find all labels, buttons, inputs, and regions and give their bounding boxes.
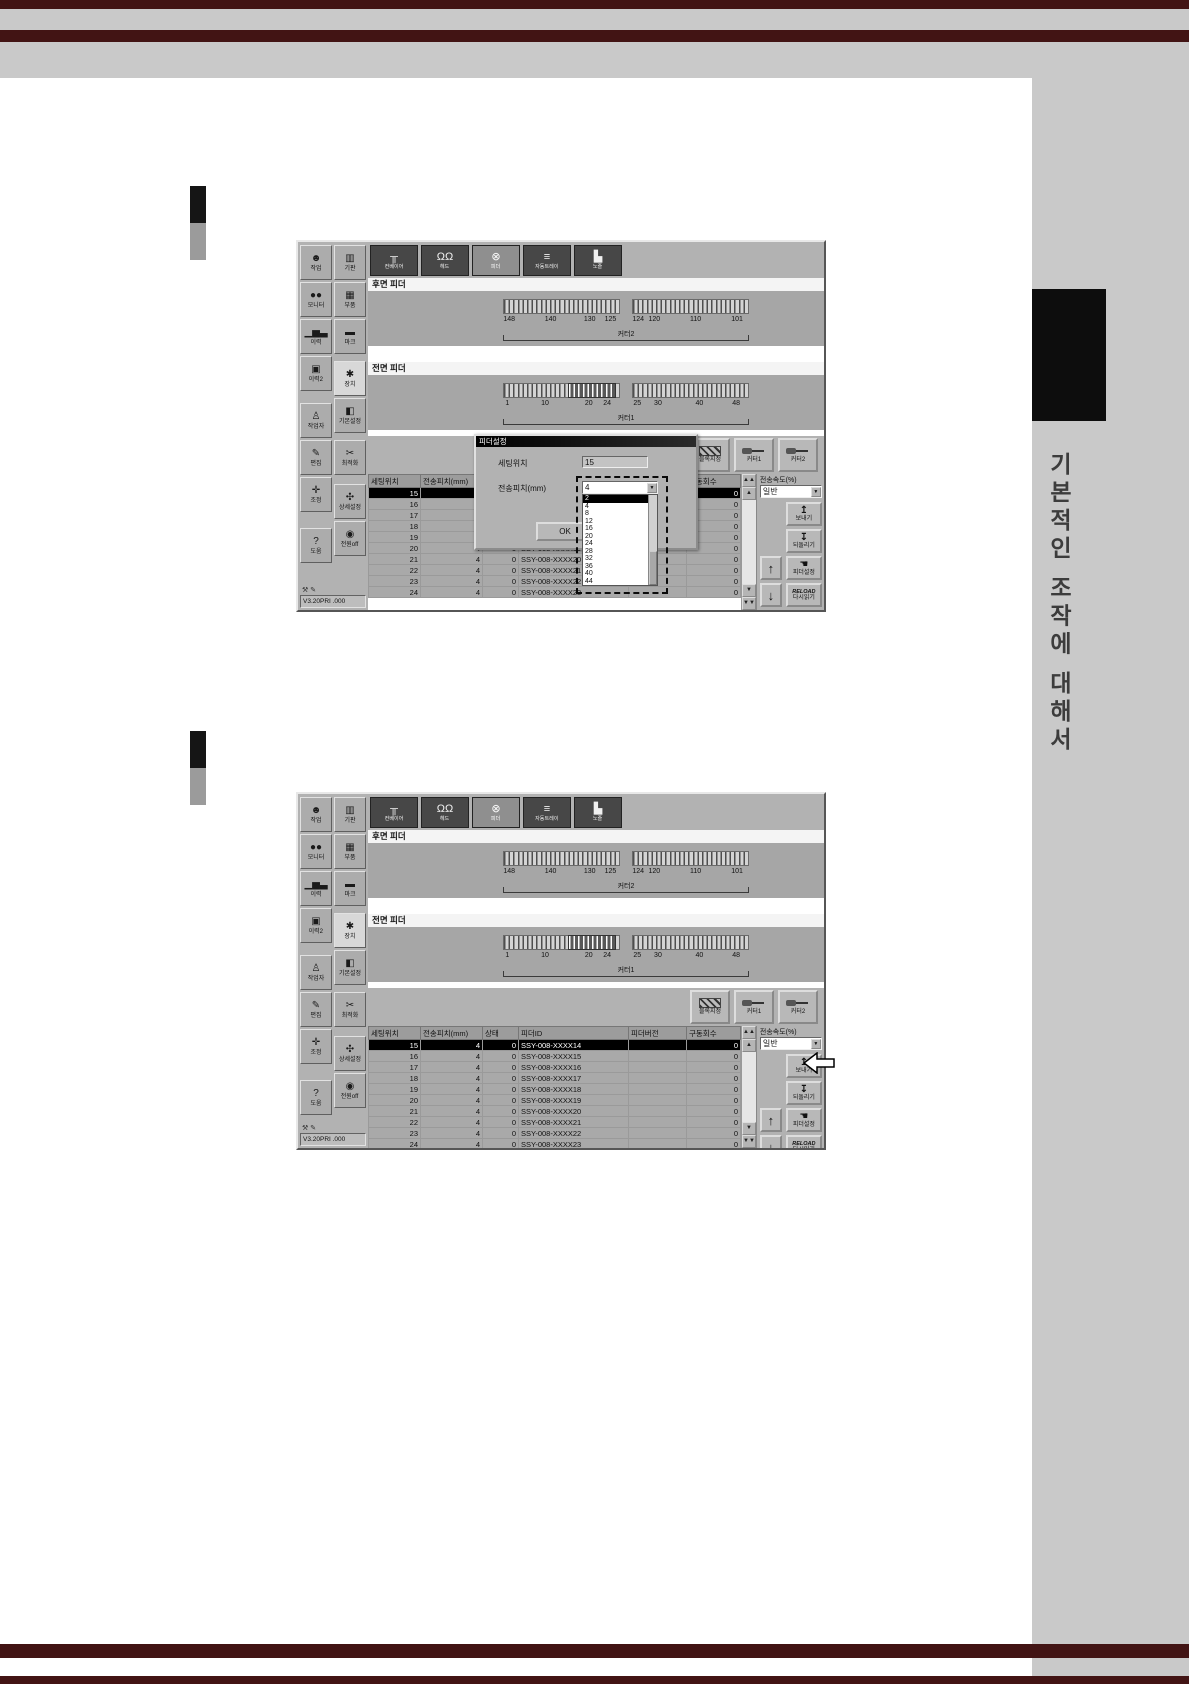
- table-row[interactable]: 15 4 0 SSY-008-XXXX14 0: [369, 1040, 741, 1051]
- sidebar-button-label: 전원off: [341, 541, 359, 547]
- sidebar-button[interactable]: ▥ 기판: [334, 245, 366, 280]
- sidebar-button-label: 이력: [310, 891, 321, 897]
- feeder-setting-label: 피더설정: [793, 570, 815, 577]
- toolbar-tab-label: 노즐: [593, 264, 602, 270]
- sidebar-button-icon: ▣: [311, 916, 320, 928]
- speed-label: 전송속도(%): [760, 476, 822, 485]
- move-down-button[interactable]: ↓: [760, 1135, 782, 1148]
- chevron-down-icon[interactable]: ▼: [647, 483, 657, 493]
- sidebar-button[interactable]: ▁▅▃ 이력: [300, 319, 332, 354]
- table-scrollbar: ▲▲ ▲ ▼ ▼▼: [741, 474, 756, 610]
- cutter1-bracket: 커터1: [503, 970, 749, 977]
- toolbar-tab[interactable]: ╥ 컨베이어: [370, 245, 418, 276]
- pitch-option[interactable]: 16: [583, 525, 648, 533]
- table-row[interactable]: 23 4 0 SSY-008-XXXX22 0: [369, 1128, 741, 1139]
- return-button[interactable]: ↧ 되돌리기: [786, 1081, 822, 1105]
- arrow-down-icon: ↧: [800, 533, 808, 543]
- sidebar-button[interactable]: ✣ 상세설정: [334, 1036, 366, 1071]
- pitch-option[interactable]: 40: [583, 570, 648, 578]
- cell-feeder-ver: [629, 1073, 687, 1084]
- scroll-track[interactable]: [742, 500, 756, 584]
- sidebar-button[interactable]: ✱ 장치: [334, 913, 366, 948]
- pitch-option[interactable]: 2: [583, 495, 648, 503]
- move-up-row: ↑ ☚ 피더설정: [760, 556, 822, 580]
- cell-setting-pos: 21: [369, 1106, 421, 1117]
- sidebar-button[interactable]: ▁▅▃ 이력: [300, 871, 332, 906]
- sidebar-button-label: 장치: [344, 381, 355, 387]
- return-button[interactable]: ↧ 되돌리기: [786, 529, 822, 553]
- sidebar-button-label: 부품: [344, 854, 355, 860]
- sidebar-button-icon: ▦: [345, 290, 354, 302]
- sidebar-button[interactable]: ✱ 장치: [334, 361, 366, 396]
- sidebar-button-grid: ☻ 작업 ▥ 기판 ●● 모니터 ▦ 부품: [300, 797, 366, 1115]
- move-down-row: ↓ RELOAD 다시읽기: [760, 583, 822, 607]
- pitch-option[interactable]: 12: [583, 518, 648, 526]
- rear-ruler-right-marks: 124120110101: [633, 868, 748, 877]
- toolbar-tab-label: 컨베이어: [385, 816, 404, 822]
- cell-feeder-id: SSY-008-XXXX14: [519, 1040, 629, 1051]
- table-row[interactable]: 20 4 0 SSY-008-XXXX19 0: [369, 1095, 741, 1106]
- cell-setting-pos: 18: [369, 521, 421, 532]
- section-marker: [190, 768, 206, 805]
- cell-status: 0: [483, 1095, 519, 1106]
- table-row[interactable]: 23 4 0 SSY-008-XXXX22 0: [369, 576, 741, 587]
- move-up-button[interactable]: ↑: [760, 1108, 782, 1132]
- sidebar-button-grid: ☻ 작업 ▥ 기판 ●● 모니터 ▦ 부품: [300, 245, 366, 563]
- send-out-button[interactable]: ↥ 보내기: [786, 502, 822, 526]
- cell-drive-count: 0: [687, 1040, 741, 1051]
- sidebar-button[interactable]: ▥ 기판: [334, 797, 366, 832]
- ruler-number: 10: [541, 400, 549, 408]
- scroll-up-icon[interactable]: ▲: [742, 487, 756, 500]
- cell-status: 0: [483, 1051, 519, 1062]
- chevron-down-icon[interactable]: ▼: [811, 487, 821, 497]
- toolbar-tab-icon: ▙: [594, 803, 602, 816]
- sidebar-button-icon: ✱: [346, 369, 354, 381]
- ruler-number: 48: [732, 952, 740, 960]
- pitch-option[interactable]: 4: [583, 503, 648, 511]
- arrow-up-icon: ↥: [800, 506, 808, 516]
- hand-icon: ☚: [799, 1112, 808, 1122]
- pitch-option[interactable]: 36: [583, 563, 648, 571]
- cell-feeder-id: SSY-008-XXXX19: [519, 1095, 629, 1106]
- sidebar-button[interactable]: ◧ 기본설정: [334, 950, 366, 985]
- screenshot-feeder-list: ☻ 작업 ▥ 기판 ●● 모니터 ▦ 부품: [296, 792, 826, 1150]
- ruler-number: 148: [503, 868, 515, 876]
- screwdriver-icon: [786, 998, 810, 1008]
- cell-feeder-ver: [629, 1051, 687, 1062]
- cell-feeder-id: SSY-008-XXXX15: [519, 1051, 629, 1062]
- sidebar-button-label: 편집: [310, 460, 321, 466]
- cell-feeder-id: SSY-008-XXXX22: [519, 1128, 629, 1139]
- sidebar-button-label: 부품: [344, 302, 355, 308]
- sidebar-button[interactable]: ? 도움: [300, 528, 332, 563]
- sidebar-button-icon: ✣: [346, 492, 354, 504]
- sidebar-button[interactable]: ▣ 이력2: [300, 908, 332, 943]
- block-select-label: 블록지정: [699, 457, 721, 464]
- column-header: 세팅위치: [369, 475, 421, 488]
- cell-pitch: 4: [421, 1139, 483, 1149]
- chevron-down-icon[interactable]: ▼: [811, 1039, 821, 1049]
- front-feeder-rulers: 1102024 25304048: [503, 935, 749, 950]
- rear-feeder-title: 후면 피더: [368, 830, 824, 843]
- table-row[interactable]: 16 4 0 SSY-008-XXXX15 0: [369, 1051, 741, 1062]
- sidebar-button[interactable]: ◧ 기본설정: [334, 398, 366, 433]
- toolbar-tab-label: 컨베이어: [385, 264, 404, 270]
- cutter1-button[interactable]: 커터1: [734, 990, 774, 1024]
- cell-setting-pos: 23: [369, 1128, 421, 1139]
- list-scroll-thumb[interactable]: [649, 551, 657, 585]
- toolbar-tab[interactable]: ▙ 노즐: [574, 245, 622, 276]
- ruler-number: 1: [505, 952, 509, 960]
- list-scrollbar[interactable]: [648, 495, 657, 585]
- pitch-option-list: 248121620242832364044: [582, 494, 658, 586]
- ruler-number: 25: [633, 952, 641, 960]
- cell-setting-pos: 20: [369, 1095, 421, 1106]
- toolbar-tab-icon: ΩΩ: [437, 251, 453, 264]
- sidebar-button[interactable]: ▣ 이력2: [300, 356, 332, 391]
- pitch-option[interactable]: 32: [583, 555, 648, 563]
- sidebar-button-label: 이력2: [309, 928, 323, 934]
- move-down-button[interactable]: ↓: [760, 583, 782, 607]
- feeder-table-wrap: 세팅위치전송피치(mm)상태피더ID피더버전구동회수 15 4 0 SSY-00…: [368, 1026, 741, 1148]
- rear-ruler-left-marks: 148140130125: [504, 316, 619, 325]
- arrow-down-icon: ↧: [800, 1085, 808, 1095]
- scroll-top-icon[interactable]: ▲▲: [742, 1026, 756, 1039]
- cell-feeder-ver: [629, 1040, 687, 1051]
- sidebar-button-icon: ▣: [311, 364, 320, 376]
- sidebar-button[interactable]: ◉ 전원off: [334, 521, 366, 556]
- cell-setting-pos: 23: [369, 576, 421, 587]
- cell-feeder-id: SSY-008-XXXX18: [519, 1084, 629, 1095]
- table-row[interactable]: 21 4 0 SSY-008-XXXX20 0: [369, 1106, 741, 1117]
- move-up-row: ↑ ☚ 피더설정: [760, 1108, 822, 1132]
- sidebar-button-label: 마크: [344, 339, 355, 345]
- cell-feeder-ver: [629, 587, 687, 598]
- cell-pitch: 4: [421, 1051, 483, 1062]
- sidebar-button[interactable]: ✎ 편집: [300, 992, 332, 1027]
- screwdriver-icon: [742, 446, 766, 456]
- cell-setting-pos: 22: [369, 565, 421, 576]
- cell-setting-pos: 19: [369, 532, 421, 543]
- status-area: ⚒ ✎ V3.20PRI .000: [300, 586, 366, 608]
- toolbar-tab-label: 자동트레이: [535, 264, 558, 270]
- cell-feeder-id: SSY-008-XXXX20: [519, 1106, 629, 1117]
- toolbar-tab-icon: ≡: [544, 803, 550, 816]
- sidebar-button[interactable]: ✛ 조정: [300, 477, 332, 512]
- speed-select[interactable]: 일반 ▼: [760, 1037, 822, 1050]
- pitch-select[interactable]: 4 ▼: [582, 481, 658, 494]
- speed-value: 일반: [763, 1038, 778, 1049]
- rear-ruler-left-marks: 148140130125: [504, 868, 619, 877]
- toolbar-tab[interactable]: ⊗ 피더: [472, 245, 520, 276]
- sidebar-button-label: 도움: [310, 548, 321, 554]
- section-marker: [190, 223, 206, 260]
- version-status: V3.20PRI .000: [300, 595, 366, 608]
- sidebar-button-icon: ✱: [346, 921, 354, 933]
- screwdriver-icon: [742, 998, 766, 1008]
- sidebar-button-icon: ✛: [312, 1037, 320, 1049]
- table-row[interactable]: 22 4 0 SSY-008-XXXX21 0: [369, 565, 741, 576]
- cutter1-label: 커터1: [747, 1009, 761, 1016]
- block-select-label: 블록지정: [699, 1009, 721, 1016]
- table-row[interactable]: 17 4 0 SSY-008-XXXX16 0: [369, 1062, 741, 1073]
- pitch-options: 248121620242832364044: [583, 495, 648, 585]
- sidebar-button-icon: ◉: [346, 1081, 355, 1093]
- sidebar-button-icon: ♙: [312, 963, 321, 975]
- toolbar-tab[interactable]: ≡ 자동트레이: [523, 797, 571, 828]
- sidebar-button-label: 장치: [344, 933, 355, 939]
- cell-feeder-ver: [629, 1084, 687, 1095]
- sidebar-button-icon: ?: [313, 536, 319, 548]
- section-marker: [190, 731, 206, 768]
- cell-feeder-ver: [629, 1128, 687, 1139]
- spacer: [368, 898, 824, 914]
- toolbar-tab[interactable]: ΩΩ 헤드: [421, 797, 469, 828]
- move-down-row: ↓ RELOAD 다시읽기: [760, 1135, 822, 1148]
- sidebar-button-label: 기본설정: [339, 970, 361, 976]
- pitch-option[interactable]: 28: [583, 548, 648, 556]
- sidebar-button[interactable]: ✂ 최적화: [334, 992, 366, 1027]
- sidebar-button[interactable]: ✂ 최적화: [334, 440, 366, 475]
- pitch-option[interactable]: 8: [583, 510, 648, 518]
- feeder-setting-button[interactable]: ☚ 피더설정: [786, 1108, 822, 1132]
- return-label: 되돌리기: [793, 1095, 815, 1102]
- cell-pitch: 4: [421, 576, 483, 587]
- toolbar-tab-icon: ╥: [390, 803, 398, 816]
- toolbar-tab-label: 헤드: [440, 264, 449, 270]
- toolbar-tab-icon: ΩΩ: [437, 803, 453, 816]
- ruler-number: 24: [603, 952, 611, 960]
- toolbar-tab[interactable]: ╥ 컨베이어: [370, 797, 418, 828]
- machine-ui-window: ☻ 작업 ▥ 기판 ●● 모니터 ▦ 부품: [296, 240, 826, 612]
- sidebar-button-icon: ☻: [311, 805, 322, 817]
- cutter2-bracket: 커터2: [503, 334, 749, 341]
- cell-setting-pos: 19: [369, 1084, 421, 1095]
- ruler-number: 120: [648, 316, 660, 324]
- sidebar-button-icon: ●●: [310, 842, 322, 854]
- toolbar-tab[interactable]: ΩΩ 헤드: [421, 245, 469, 276]
- toolbar-tab-icon: ⊗: [491, 251, 500, 264]
- sidebar-button-icon: ▁▅▃: [304, 327, 327, 339]
- ruler-number: 1: [505, 400, 509, 408]
- toolbar-tab[interactable]: ≡ 자동트레이: [523, 245, 571, 276]
- block-pattern-icon: [699, 446, 721, 456]
- sidebar-button[interactable]: ▦ 부품: [334, 834, 366, 869]
- feeder-setting-label: 피더설정: [793, 1122, 815, 1129]
- selected-range-highlight: [568, 383, 616, 398]
- column-header: 세팅위치: [369, 1027, 421, 1040]
- ruler-number: 40: [695, 952, 703, 960]
- front-ruler-left-marks: 1102024: [504, 400, 619, 409]
- sidebar-button[interactable]: ▬ 마크: [334, 871, 366, 906]
- setting-pos-label: 세팅위치: [498, 458, 527, 469]
- cutter1-button[interactable]: 커터1: [734, 438, 774, 472]
- feeder-setting-dialog: 피더설정 세팅위치 15 전송피치(mm) 4 ▼ OK 24812162024…: [474, 434, 698, 550]
- ruler-number: 140: [545, 868, 557, 876]
- sidebar-button[interactable]: ☻ 작업: [300, 797, 332, 832]
- ruler-number: 148: [503, 316, 515, 324]
- sidebar-button-icon: ▁▅▃: [304, 879, 327, 891]
- cell-status: 0: [483, 1106, 519, 1117]
- setting-pos-field: 15: [582, 456, 648, 468]
- rear-feeder-rulers: 148140130125 124120110101: [503, 299, 749, 314]
- sidebar-button-icon: ✎: [312, 448, 320, 460]
- dialog-title: 피더설정: [476, 436, 696, 447]
- sidebar-button-icon: ◧: [345, 958, 354, 970]
- ruler-number: 125: [605, 316, 617, 324]
- ruler-number: 120: [648, 868, 660, 876]
- front-ruler-right: 25304048: [632, 935, 749, 950]
- table-row[interactable]: 18 4 0 SSY-008-XXXX17 0: [369, 1073, 741, 1084]
- table-row[interactable]: 19 4 0 SSY-008-XXXX18 0: [369, 1084, 741, 1095]
- front-ruler-right-marks: 25304048: [633, 952, 748, 961]
- reload-label: 다시읽기: [793, 1147, 815, 1149]
- sidebar-button-label: 모니터: [308, 854, 325, 860]
- move-up-button[interactable]: ↑: [760, 556, 782, 580]
- sidebar-button-icon: ◉: [346, 529, 355, 541]
- cutter2-button[interactable]: 커터2: [778, 438, 818, 472]
- sidebar-button[interactable]: ✣ 상세설정: [334, 484, 366, 519]
- table-row[interactable]: 22 4 0 SSY-008-XXXX21 0: [369, 1117, 741, 1128]
- send-out-label: 보내기: [796, 516, 813, 523]
- sidebar-button-icon: ✛: [312, 485, 320, 497]
- sidebar-button-icon: ✣: [346, 1044, 354, 1056]
- sidebar-button-icon: ?: [313, 1088, 319, 1100]
- cell-drive-count: 0: [687, 554, 741, 565]
- cell-feeder-id: SSY-008-XXXX16: [519, 1062, 629, 1073]
- cell-setting-pos: 20: [369, 543, 421, 554]
- return-label: 되돌리기: [793, 543, 815, 550]
- sidebar-button-label: 작업자: [308, 975, 325, 981]
- cell-pitch: 4: [421, 1117, 483, 1128]
- sidebar-button-icon: ✂: [346, 448, 354, 460]
- toolbar-tab-icon: ╥: [390, 251, 398, 264]
- column-header: 구동회수: [687, 1027, 741, 1040]
- sidebar-button-label: 편집: [310, 1012, 321, 1018]
- sidebar-button[interactable]: ●● 모니터: [300, 834, 332, 869]
- reload-button[interactable]: RELOAD 다시읽기: [786, 1135, 822, 1148]
- sidebar-button[interactable]: ◉ 전원off: [334, 1073, 366, 1108]
- sidebar-button-icon: ●●: [310, 290, 322, 302]
- feeder-table-zone: 세팅위치전송피치(mm)상태피더ID피더버전구동회수 15 4 0 SSY-00…: [368, 1026, 824, 1148]
- cell-setting-pos: 24: [369, 1139, 421, 1149]
- ruler-number: 30: [654, 400, 662, 408]
- scroll-top-icon[interactable]: ▲▲: [742, 474, 756, 487]
- feeder-setting-button[interactable]: ☚ 피더설정: [786, 556, 822, 580]
- cell-setting-pos: 16: [369, 1051, 421, 1062]
- actions-row: 블록지정 커터1 커터2: [368, 988, 824, 1026]
- table-row[interactable]: 24 4 0 SSY-008-XXXX23 0: [369, 587, 741, 598]
- sidebar-button-label: 기본설정: [339, 418, 361, 424]
- cell-status: 0: [483, 1128, 519, 1139]
- ruler-number: 101: [731, 316, 743, 324]
- cell-status: 0: [483, 587, 519, 598]
- sidebar-button[interactable]: ▦ 부품: [334, 282, 366, 317]
- sidebar-button-label: 도움: [310, 1100, 321, 1106]
- toolbar-tab[interactable]: ▙ 노즐: [574, 797, 622, 828]
- cell-feeder-id: SSY-008-XXXX21: [519, 1117, 629, 1128]
- rear-feeder-panel: 148140130125 124120110101 커터2: [368, 291, 824, 346]
- sidebar-button-label: 이력2: [309, 376, 323, 382]
- scroll-track[interactable]: [742, 1052, 756, 1122]
- pitch-option[interactable]: 24: [583, 540, 648, 548]
- ruler-number: 110: [690, 316, 701, 324]
- cell-drive-count: 0: [687, 576, 741, 587]
- cutter1-bracket-label: 커터1: [615, 967, 638, 975]
- cutter2-bracket-label: 커터2: [615, 331, 638, 339]
- reload-button[interactable]: RELOAD 다시읽기: [786, 583, 822, 607]
- sidebar-button[interactable]: ●● 모니터: [300, 282, 332, 317]
- page-stripe: [0, 0, 1189, 9]
- sidebar-button[interactable]: ? 도움: [300, 1080, 332, 1115]
- sidebar-button[interactable]: ☻ 작업: [300, 245, 332, 280]
- cutter2-bracket-label: 커터2: [615, 883, 638, 891]
- sidebar-button-label: 이력: [310, 339, 321, 345]
- cell-setting-pos: 16: [369, 499, 421, 510]
- block-select-button[interactable]: 블록지정: [690, 990, 730, 1024]
- speed-select[interactable]: 일반 ▼: [760, 485, 822, 498]
- cell-drive-count: 0: [687, 1095, 741, 1106]
- cell-pitch: 4: [421, 1062, 483, 1073]
- cell-status: 0: [483, 1139, 519, 1149]
- front-ruler-right: 25304048: [632, 383, 749, 398]
- cell-setting-pos: 17: [369, 510, 421, 521]
- sidebar-button-label: 기판: [344, 265, 355, 271]
- ruler-number: 10: [541, 952, 549, 960]
- cell-feeder-ver: [629, 1095, 687, 1106]
- sidebar-button[interactable]: ✎ 편집: [300, 440, 332, 475]
- sidebar-button[interactable]: ♙ 작업자: [300, 955, 332, 990]
- status-icons: ⚒ ✎: [300, 586, 366, 595]
- reload-label: 다시읽기: [793, 595, 815, 602]
- sidebar-button-icon: ☻: [311, 253, 322, 265]
- pointer-cursor-icon: [803, 1052, 835, 1074]
- sidebar-button-label: 상세설정: [339, 504, 361, 510]
- cell-setting-pos: 22: [369, 1117, 421, 1128]
- sidebar-button[interactable]: ♙ 작업자: [300, 403, 332, 438]
- table-row[interactable]: 24 4 0 SSY-008-XXXX23 0: [369, 1139, 741, 1149]
- scroll-down-icon[interactable]: ▼: [742, 584, 756, 597]
- sidebar-button-icon: ▥: [345, 805, 354, 817]
- scroll-up-icon[interactable]: ▲: [742, 1039, 756, 1052]
- sidebar-button[interactable]: ▬ 마크: [334, 319, 366, 354]
- front-feeder-title: 전면 피더: [368, 362, 824, 375]
- pitch-option[interactable]: 44: [583, 578, 648, 586]
- cell-drive-count: 0: [687, 1062, 741, 1073]
- pitch-option[interactable]: 20: [583, 533, 648, 541]
- scroll-down-icon[interactable]: ▼: [742, 1122, 756, 1135]
- table-row[interactable]: 21 4 0 SSY-008-XXXX20 0: [369, 554, 741, 565]
- scroll-bottom-icon[interactable]: ▼▼: [742, 1135, 756, 1148]
- column-header: 피더버전: [629, 1027, 687, 1040]
- toolbar-tab[interactable]: ⊗ 피더: [472, 797, 520, 828]
- toolbar-tab-label: 노즐: [593, 816, 602, 822]
- screenshot-feeder-dialog: ☻ 작업 ▥ 기판 ●● 모니터 ▦ 부품: [296, 240, 826, 612]
- cell-drive-count: 0: [687, 1117, 741, 1128]
- cutter2-button[interactable]: 커터2: [778, 990, 818, 1024]
- toolbar-tab-label: 자동트레이: [535, 816, 558, 822]
- scroll-bottom-icon[interactable]: ▼▼: [742, 597, 756, 610]
- sidebar-button-label: 작업: [310, 817, 321, 823]
- toolbar-tab-icon: ≡: [544, 251, 550, 264]
- cell-setting-pos: 21: [369, 554, 421, 565]
- cell-setting-pos: 18: [369, 1073, 421, 1084]
- sidebar-button[interactable]: ✛ 조정: [300, 1029, 332, 1064]
- cell-drive-count: 0: [687, 1073, 741, 1084]
- cell-pitch: 4: [421, 1128, 483, 1139]
- cell-drive-count: 0: [687, 1106, 741, 1117]
